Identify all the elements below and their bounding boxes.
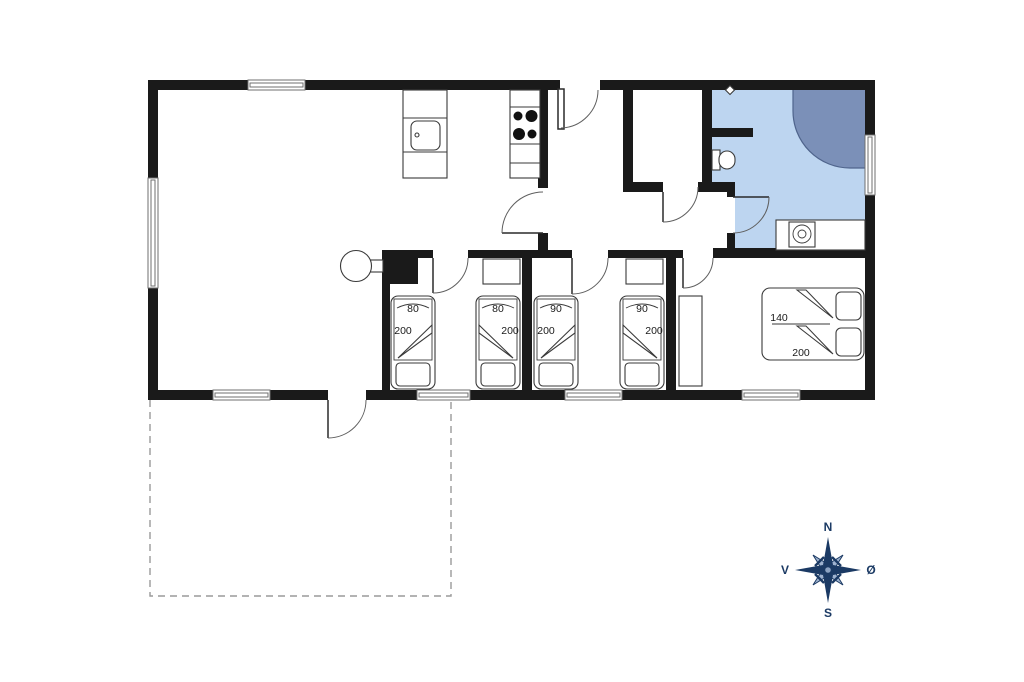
wall-segment [148,80,158,178]
wall-segment [865,195,875,400]
bed-width-label: 80 [407,303,419,315]
wall-segment [468,250,572,258]
window [213,390,270,400]
bed-width-label: 140 [770,312,788,324]
bed-length-label: 200 [394,325,412,337]
window [742,390,800,400]
compass-south-label: S [824,606,832,620]
wall-segment [600,80,875,90]
bed-width-label: 90 [636,303,648,315]
wall-segment [470,390,565,400]
bed-length-label: 200 [645,325,663,337]
terrace-door [328,400,366,438]
wall-segment [148,80,248,90]
window [148,178,158,288]
wall-segment [522,258,532,390]
wall-segment [622,390,742,400]
window [248,80,305,90]
wall-segment [305,80,560,90]
pillow [836,328,861,356]
wall-segment [702,90,712,185]
bed-width-label: 90 [550,303,562,315]
bed-width-label: 80 [492,303,504,315]
wall-segment [382,284,390,390]
toilet-icon [712,150,735,170]
window [565,390,622,400]
wall-segment [270,390,328,400]
compass-north-label: N [824,520,833,534]
window [417,390,470,400]
floorplan-drawing: 80 200 80 200 90 200 90 200 140 200 N [0,0,1024,682]
wall-segment [382,250,433,258]
wall-segment [800,390,875,400]
wall-segment [865,80,875,135]
compass-east-label: Ø [866,563,875,577]
wood-stove-icon [341,251,372,282]
wall-segment [666,258,676,390]
compass-center-dot [825,567,831,573]
wardrobe [483,259,520,284]
faucet-icon [415,133,419,137]
wardrobe [679,296,702,386]
bed-length-label: 200 [501,325,519,337]
wall-segment [727,183,735,197]
bed-length-label: 200 [537,325,555,337]
wall-segment [623,90,633,192]
double-bed [762,288,864,360]
wall-segment [608,250,683,258]
pillow [836,292,861,320]
wall-segment [633,182,663,192]
window [865,135,875,195]
compass-west-label: V [781,563,789,577]
compass-rose: N Ø S V [781,520,876,620]
toilet-privacy-wall [712,128,753,137]
wardrobe [626,259,663,284]
bed-length-label: 200 [792,347,810,359]
terrace-outline [150,400,451,596]
floorplan-canvas: 80 200 80 200 90 200 90 200 140 200 N [0,0,1024,682]
wall-segment [366,390,417,400]
wall-segment [148,288,158,400]
chimney-block [382,258,418,284]
